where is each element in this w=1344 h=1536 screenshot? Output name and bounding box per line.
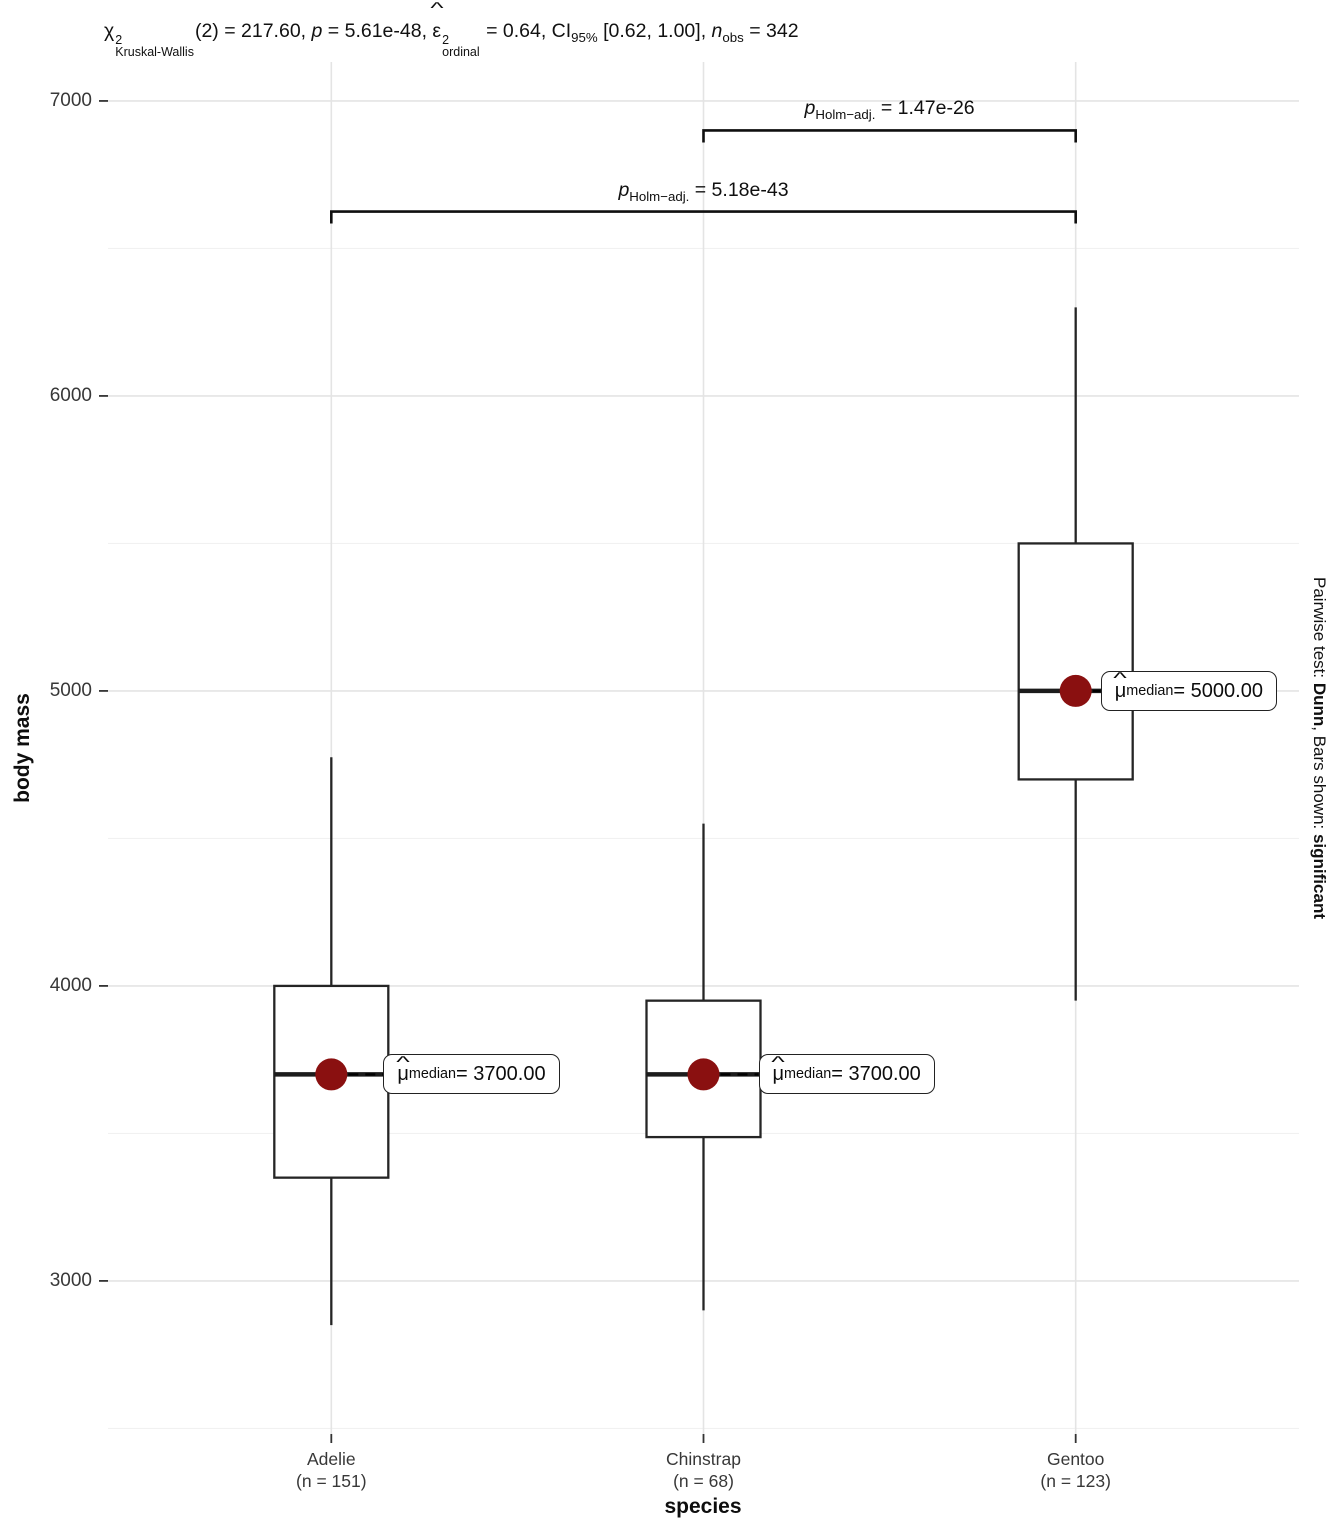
caption-bold: Dunn bbox=[1310, 683, 1329, 726]
pairwise-test-caption: Pairwise test: Dunn, Bars shown: signifi… bbox=[1309, 577, 1329, 919]
plot-canvas bbox=[0, 0, 1344, 1536]
median-label-value: = 3700.00 bbox=[831, 1064, 921, 1084]
significance-bracket-2 bbox=[704, 130, 1076, 142]
box-gentoo bbox=[1019, 543, 1133, 779]
median-label-subscript: median bbox=[409, 1067, 456, 1081]
median-label-adelie: ^μmedian = 3700.00 bbox=[383, 1054, 559, 1094]
median-label-value: = 3700.00 bbox=[456, 1064, 546, 1084]
y-tick-label-4000: 4000 bbox=[30, 974, 92, 998]
y-tick-label-5000: 5000 bbox=[30, 679, 92, 703]
median-label-subscript: median bbox=[1126, 684, 1173, 698]
y-tick-label-3000: 3000 bbox=[30, 1269, 92, 1293]
p-value-label-1: pHolm−adj. = 5.18e-43 bbox=[618, 178, 788, 209]
y-tick-label-6000: 6000 bbox=[30, 384, 92, 408]
y-axis-title: body mass bbox=[11, 693, 35, 803]
median-label-subscript: median bbox=[784, 1067, 831, 1081]
x-tick-label-chinstrap: Chinstrap(n = 68) bbox=[666, 1448, 741, 1492]
x-tick-label-gentoo: Gentoo(n = 123) bbox=[1040, 1448, 1111, 1492]
median-dot-gentoo bbox=[1060, 675, 1092, 707]
median-dot-chinstrap bbox=[688, 1058, 720, 1090]
mu-hat-symbol: ^μ bbox=[1115, 681, 1127, 701]
caption-text: Pairwise test: bbox=[1310, 577, 1329, 683]
median-label-value: = 5000.00 bbox=[1173, 681, 1263, 701]
median-label-gentoo: ^μmedian = 5000.00 bbox=[1101, 671, 1277, 711]
median-label-chinstrap: ^μmedian = 3700.00 bbox=[759, 1054, 935, 1094]
boxplot-figure: χ2Kruskal-Wallis(2) = 217.60, p = 5.61e-… bbox=[0, 0, 1344, 1536]
caption-bold: significant bbox=[1310, 834, 1329, 919]
median-dot-adelie bbox=[315, 1058, 347, 1090]
caption-text: , Bars shown: bbox=[1310, 726, 1329, 834]
x-axis-title: species bbox=[664, 1495, 741, 1519]
p-value-label-2: pHolm−adj. = 1.47e-26 bbox=[805, 96, 975, 127]
y-tick-label-7000: 7000 bbox=[30, 89, 92, 113]
mu-hat-symbol: ^μ bbox=[397, 1064, 409, 1084]
mu-hat-symbol: ^μ bbox=[773, 1064, 785, 1084]
x-tick-label-adelie: Adelie(n = 151) bbox=[296, 1448, 367, 1492]
